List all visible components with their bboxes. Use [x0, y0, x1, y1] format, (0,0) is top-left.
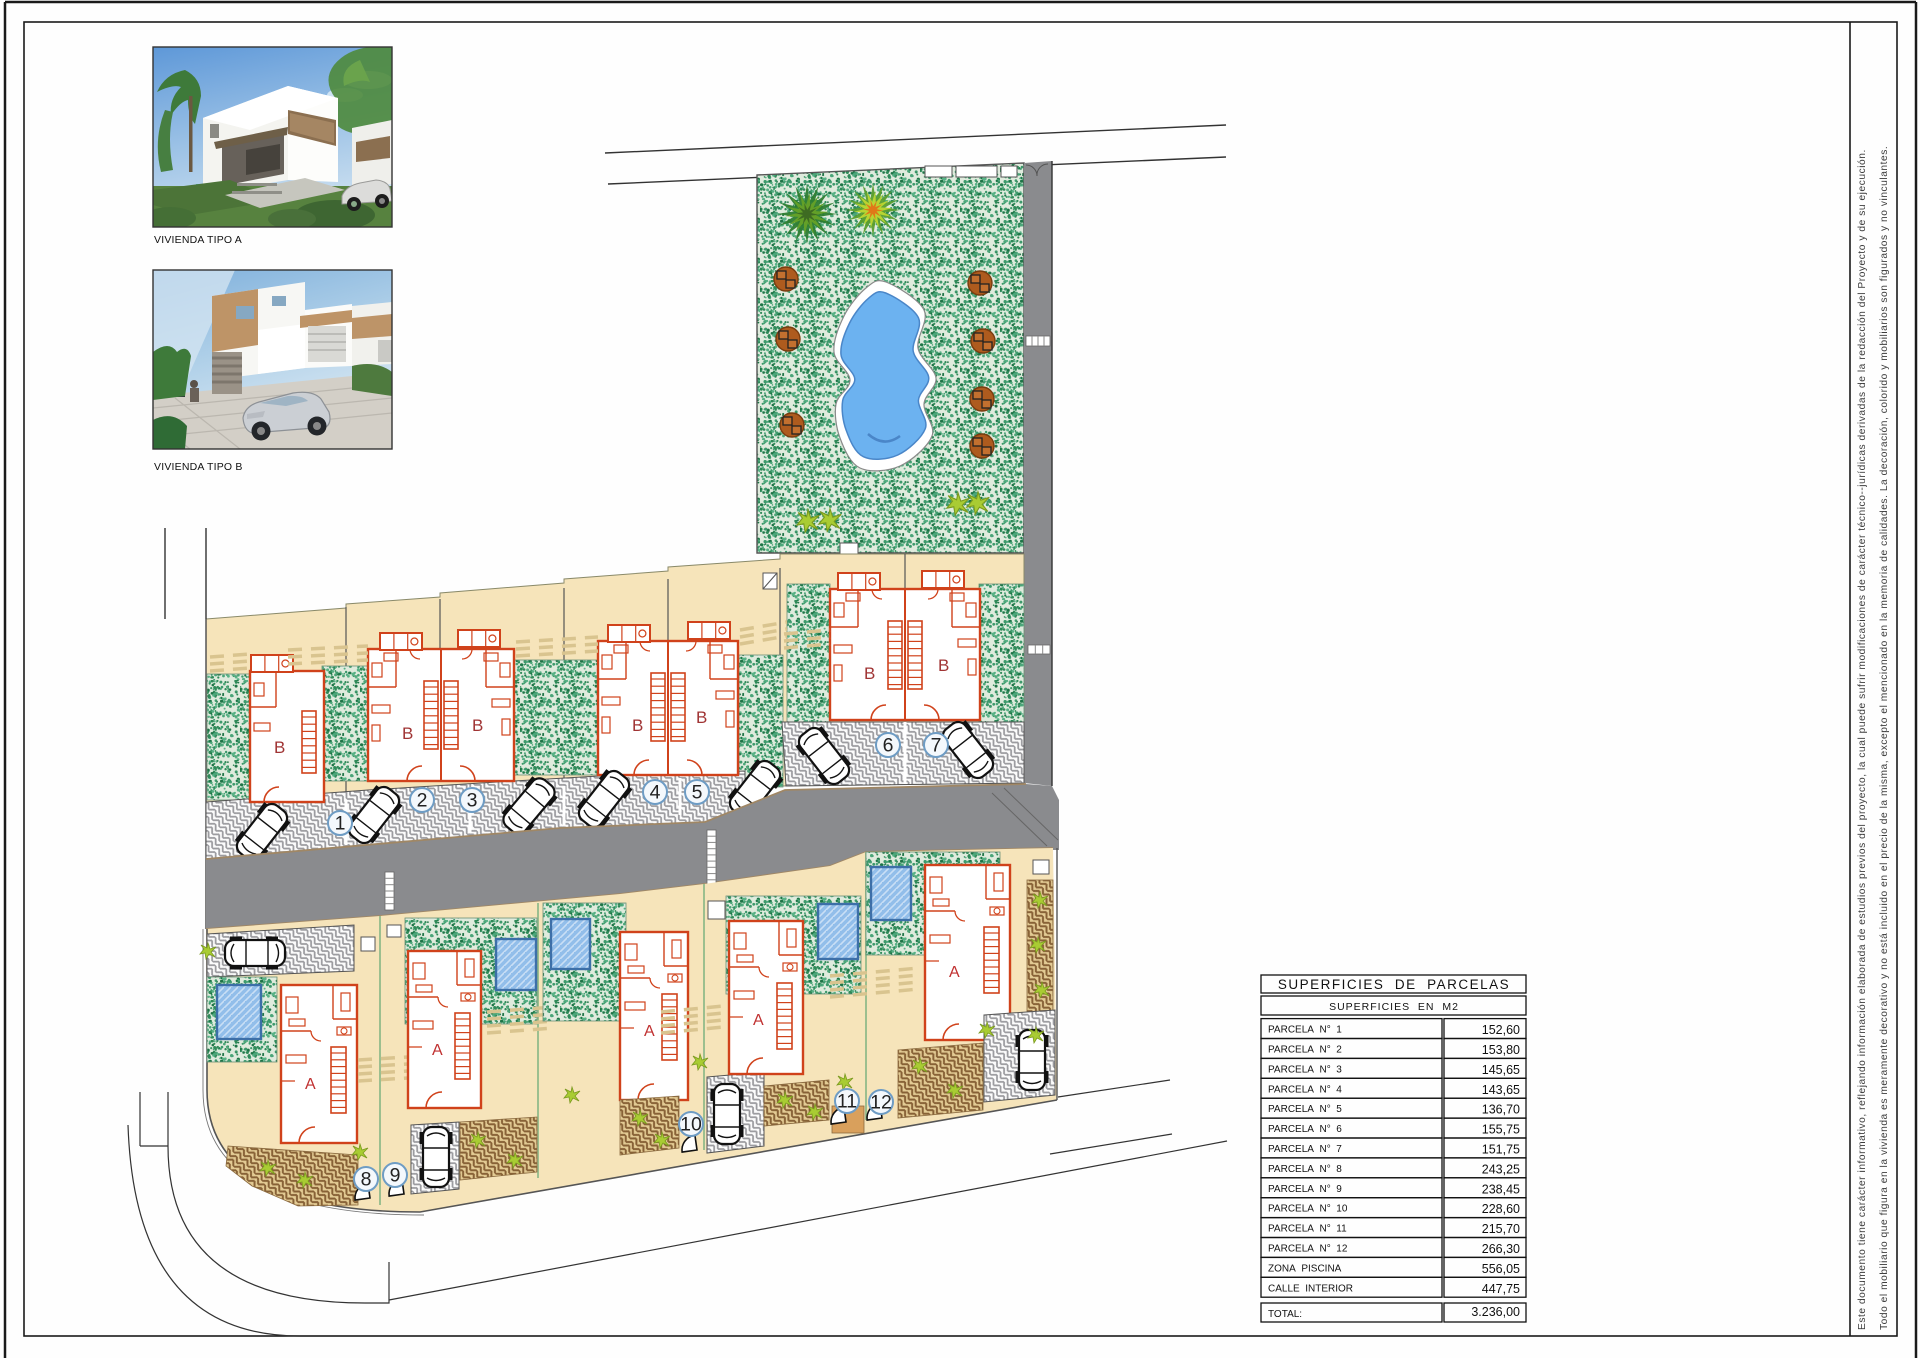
svg-text:12: 12 — [870, 1092, 892, 1114]
svg-text:145,65: 145,65 — [1482, 1063, 1520, 1077]
svg-text:PARCELA N° 7: PARCELA N° 7 — [1268, 1144, 1342, 1155]
svg-text:B: B — [864, 664, 875, 683]
svg-text:PARCELA N° 11: PARCELA N° 11 — [1268, 1224, 1347, 1235]
svg-text:PARCELA N° 5: PARCELA N° 5 — [1268, 1104, 1342, 1115]
svg-text:215,70: 215,70 — [1482, 1222, 1520, 1236]
svg-text:6: 6 — [883, 735, 894, 757]
svg-text:10: 10 — [680, 1114, 702, 1136]
svg-text:5: 5 — [692, 782, 703, 804]
svg-text:556,05: 556,05 — [1482, 1262, 1520, 1276]
svg-text:Este documento tiene carácter: Este documento tiene carácter informativ… — [1857, 149, 1868, 1330]
svg-text:A: A — [753, 1012, 764, 1029]
svg-text:PARCELA N° 10: PARCELA N° 10 — [1268, 1204, 1348, 1215]
svg-text:SUPERFICIES EN M2: SUPERFICIES EN M2 — [1329, 1001, 1459, 1013]
svg-text:TOTAL:: TOTAL: — [1268, 1309, 1302, 1320]
svg-text:151,75: 151,75 — [1482, 1143, 1520, 1157]
svg-text:9: 9 — [390, 1165, 401, 1187]
svg-text:266,30: 266,30 — [1482, 1242, 1520, 1256]
svg-text:PARCELA N° 8: PARCELA N° 8 — [1268, 1164, 1342, 1175]
svg-text:2: 2 — [417, 790, 428, 812]
svg-text:B: B — [632, 716, 643, 735]
svg-text:SUPERFICIES DE PARCELAS: SUPERFICIES DE PARCELAS — [1278, 977, 1510, 992]
svg-text:3: 3 — [467, 790, 478, 812]
svg-text:447,75: 447,75 — [1482, 1282, 1520, 1296]
svg-text:A: A — [432, 1042, 443, 1059]
svg-text:CALLE INTERIOR: CALLE INTERIOR — [1268, 1283, 1353, 1294]
svg-text:PARCELA N° 1: PARCELA N° 1 — [1268, 1025, 1342, 1036]
svg-text:243,25: 243,25 — [1482, 1162, 1520, 1176]
svg-text:B: B — [402, 724, 413, 743]
svg-text:1: 1 — [335, 813, 346, 835]
svg-text:PARCELA N° 6: PARCELA N° 6 — [1268, 1124, 1342, 1135]
svg-text:136,70: 136,70 — [1482, 1103, 1520, 1117]
svg-text:B: B — [274, 738, 285, 757]
svg-text:VIVIENDA TIPO B: VIVIENDA TIPO B — [154, 461, 243, 473]
svg-text:238,45: 238,45 — [1482, 1182, 1520, 1196]
svg-text:155,75: 155,75 — [1482, 1123, 1520, 1137]
svg-text:PARCELA N° 12: PARCELA N° 12 — [1268, 1244, 1348, 1255]
svg-text:B: B — [938, 656, 949, 675]
svg-text:ZONA PISCINA: ZONA PISCINA — [1268, 1263, 1342, 1274]
svg-text:B: B — [472, 716, 483, 735]
svg-text:7: 7 — [931, 735, 942, 757]
svg-text:228,60: 228,60 — [1482, 1202, 1520, 1216]
svg-text:143,65: 143,65 — [1482, 1083, 1520, 1097]
svg-text:B: B — [696, 708, 707, 727]
svg-text:11: 11 — [837, 1091, 857, 1113]
svg-text:A: A — [644, 1023, 655, 1040]
svg-text:Todo el mobiliario que figura: Todo el mobiliario que figura en la vivi… — [1879, 146, 1890, 1330]
svg-text:152,60: 152,60 — [1482, 1023, 1520, 1037]
svg-text:153,80: 153,80 — [1482, 1043, 1520, 1057]
svg-text:PARCELA N° 2: PARCELA N° 2 — [1268, 1045, 1342, 1056]
svg-text:3.236,00: 3.236,00 — [1471, 1305, 1520, 1319]
svg-text:A: A — [305, 1076, 316, 1093]
svg-text:PARCELA N° 3: PARCELA N° 3 — [1268, 1064, 1342, 1075]
svg-text:A: A — [949, 964, 960, 981]
svg-text:PARCELA N° 4: PARCELA N° 4 — [1268, 1084, 1342, 1095]
svg-text:PARCELA N° 9: PARCELA N° 9 — [1268, 1184, 1342, 1195]
svg-text:8: 8 — [361, 1169, 372, 1191]
svg-text:VIVIENDA TIPO A: VIVIENDA TIPO A — [154, 234, 242, 246]
svg-text:4: 4 — [650, 782, 661, 804]
